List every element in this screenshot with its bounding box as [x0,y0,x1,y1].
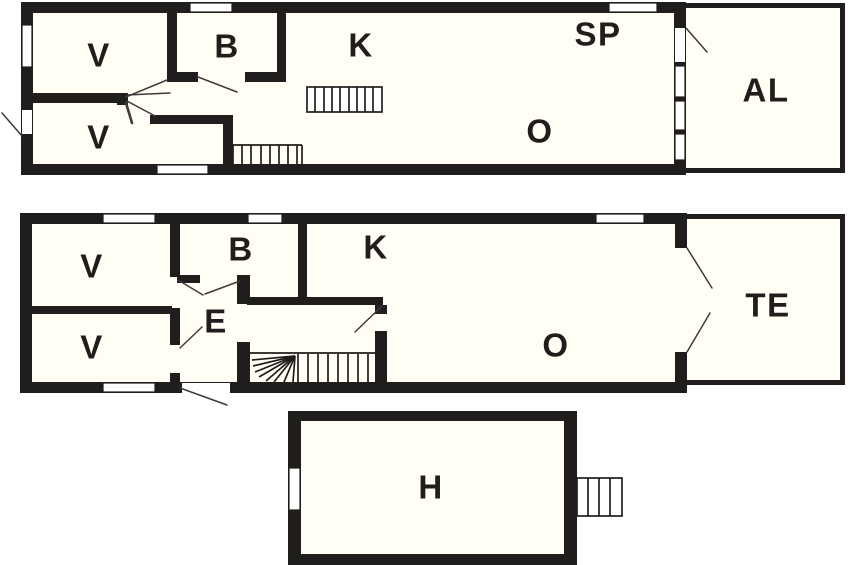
room-label-v: V [87,119,111,156]
staircase-outline [307,87,382,112]
door-opening [22,110,32,134]
wall-segment [167,13,177,82]
room-label-sp: SP [574,16,621,53]
window [675,134,685,160]
room-label-v: V [87,37,111,74]
annex-wall-segment [687,380,845,385]
window [157,165,208,174]
room-label-o: O [526,113,553,150]
wall-segment [237,342,250,383]
wall-segment [288,554,577,565]
window [596,214,644,223]
wall-segment [150,115,233,124]
wall-segment [223,115,233,167]
annex-wall-segment [686,3,845,8]
room-label-al: AL [743,72,790,109]
wall-segment [277,13,286,82]
room-label-e: E [204,303,228,340]
room-label-k: K [363,229,388,266]
wall-segment [375,331,387,383]
floorplan-page: V B K SP O V AL [0,0,848,565]
annex-wall-segment [686,168,845,173]
wall-segment [564,411,577,565]
door-opening [675,28,685,62]
floor-plan-outbuilding: H [288,411,622,565]
room-label-k: K [348,27,373,64]
window [22,25,32,67]
wall-segment [245,72,277,82]
wall-segment [675,352,687,393]
annex-wall-segment [840,3,845,173]
room-label-v: V [80,329,104,366]
annex-wall-segment [840,214,845,385]
room-label-o: O [542,327,569,364]
wall-segment [247,297,383,305]
wall-segment [177,72,198,82]
wall-segment [32,306,172,314]
wall-segment [170,373,180,383]
wall-segment [298,224,307,305]
window [103,214,155,223]
window [289,468,300,510]
wall-segment [33,93,117,103]
window [675,66,685,97]
floor-plan-upper: V B K SP O V AL [2,2,845,175]
exterior-steps [577,478,622,516]
room-label-te: TE [745,287,790,324]
window [675,101,685,130]
window [609,3,657,12]
wall-segment [20,213,32,393]
door-swing-line [2,113,22,136]
wall-segment [170,224,180,277]
room-label-b: B [228,231,253,268]
wall-segment [288,411,577,421]
annex-wall-segment [687,214,845,219]
floor-plan-canvas: V B K SP O V AL [0,0,848,565]
window [248,214,282,223]
wall-segment [675,213,687,248]
room-label-b: B [214,28,239,65]
wall-segment [21,2,686,13]
window [190,3,232,12]
room-label-v: V [80,248,104,285]
wall-segment [170,308,180,345]
floor-plan-ground: V B K E V O TE [20,213,845,405]
wall-segment [21,164,686,175]
window [103,383,155,392]
room-label-h: H [418,469,443,506]
staircase [307,87,382,112]
